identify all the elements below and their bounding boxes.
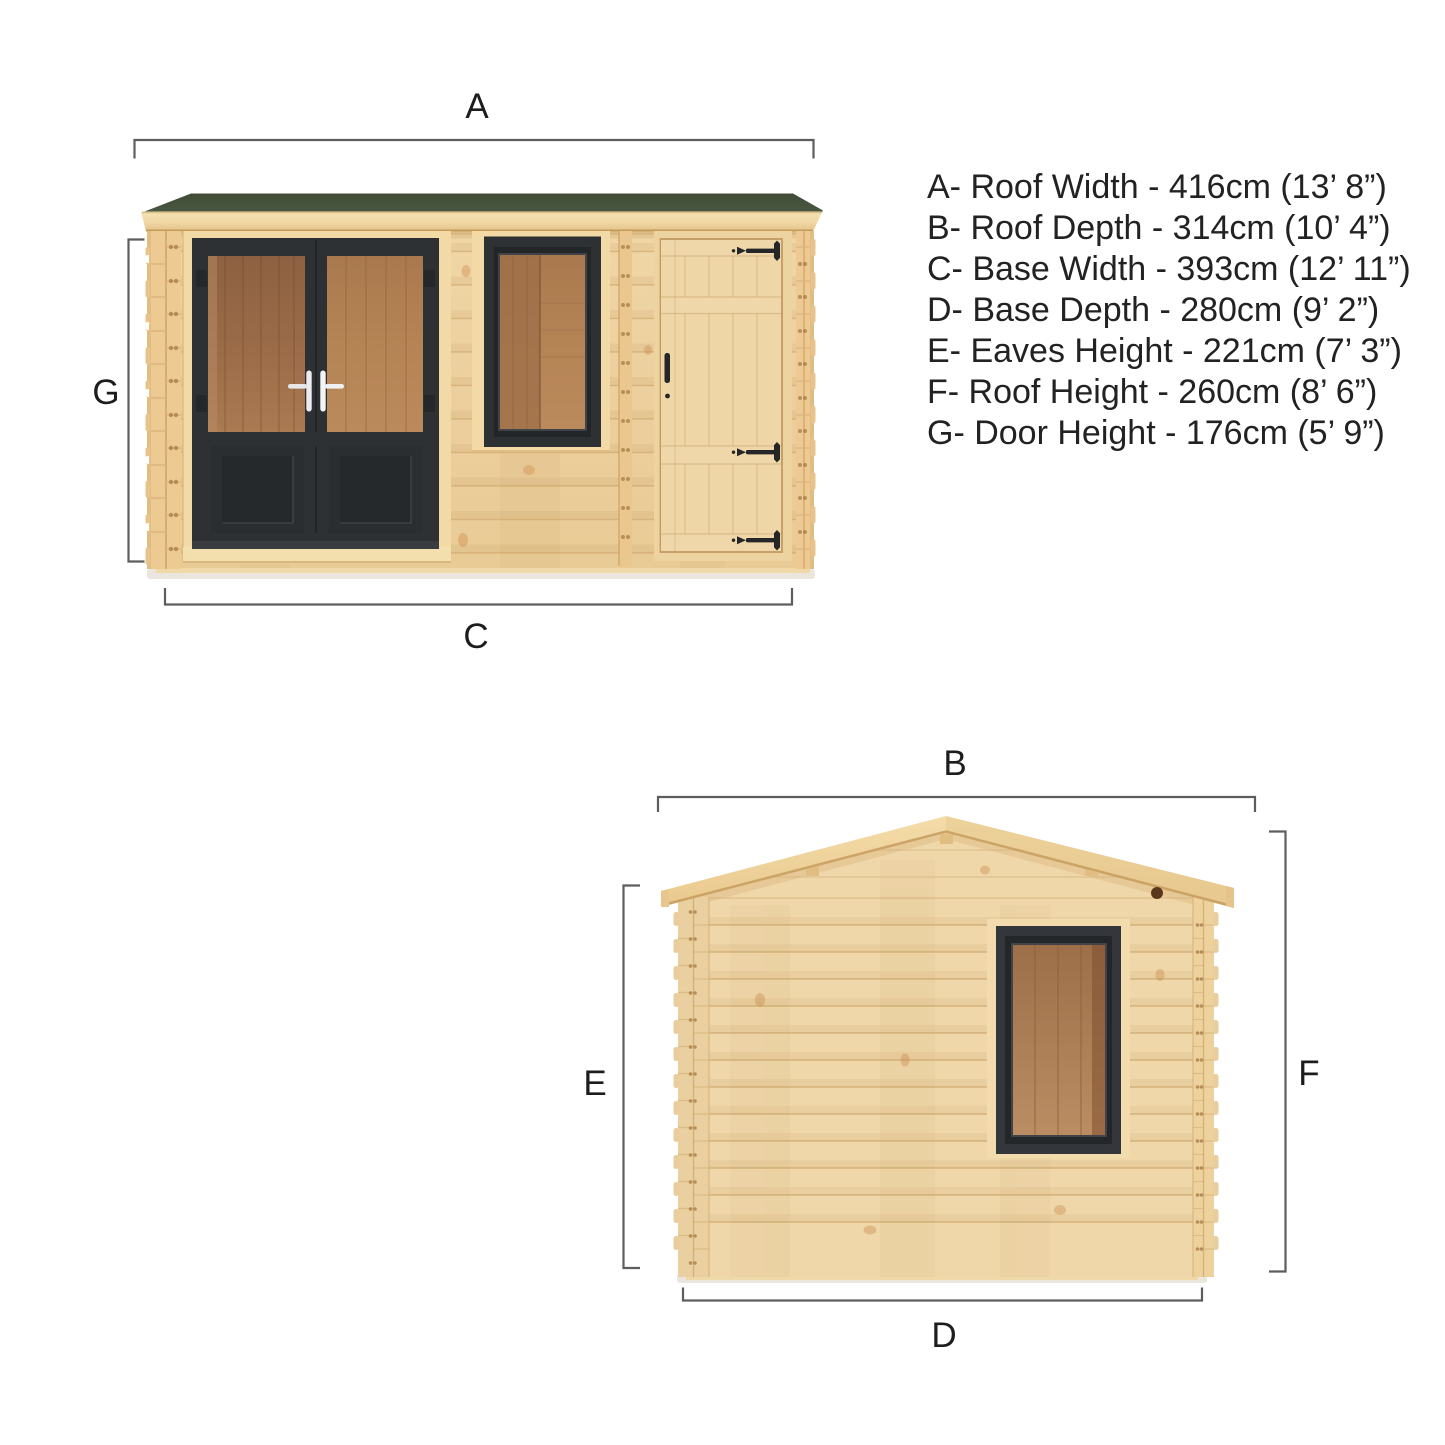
svg-text:B- Roof Depth - 314cm (10’ 4”): B- Roof Depth - 314cm (10’ 4”) bbox=[927, 209, 1391, 247]
svg-text:E- Eaves Height - 221cm (7’ 3”: E- Eaves Height - 221cm (7’ 3”) bbox=[927, 332, 1402, 370]
svg-text:F: F bbox=[1298, 1054, 1319, 1093]
svg-text:F- Roof Height - 260cm (8’ 6”): F- Roof Height - 260cm (8’ 6”) bbox=[927, 373, 1377, 411]
svg-text:A: A bbox=[465, 87, 489, 126]
svg-text:C: C bbox=[463, 617, 488, 656]
svg-text:E: E bbox=[583, 1064, 606, 1103]
svg-text:A- Roof Width - 416cm (13’ 8”): A- Roof Width - 416cm (13’ 8”) bbox=[927, 168, 1387, 206]
svg-text:D: D bbox=[931, 1316, 956, 1355]
svg-text:B: B bbox=[943, 744, 966, 783]
svg-text:D- Base Depth - 280cm (9’ 2”): D- Base Depth - 280cm (9’ 2”) bbox=[927, 291, 1379, 329]
svg-text:G: G bbox=[92, 373, 119, 412]
svg-text:C- Base Width - 393cm (12’ 11”: C- Base Width - 393cm (12’ 11”) bbox=[927, 250, 1411, 288]
svg-text:G- Door Height - 176cm (5’ 9”): G- Door Height - 176cm (5’ 9”) bbox=[927, 414, 1385, 452]
